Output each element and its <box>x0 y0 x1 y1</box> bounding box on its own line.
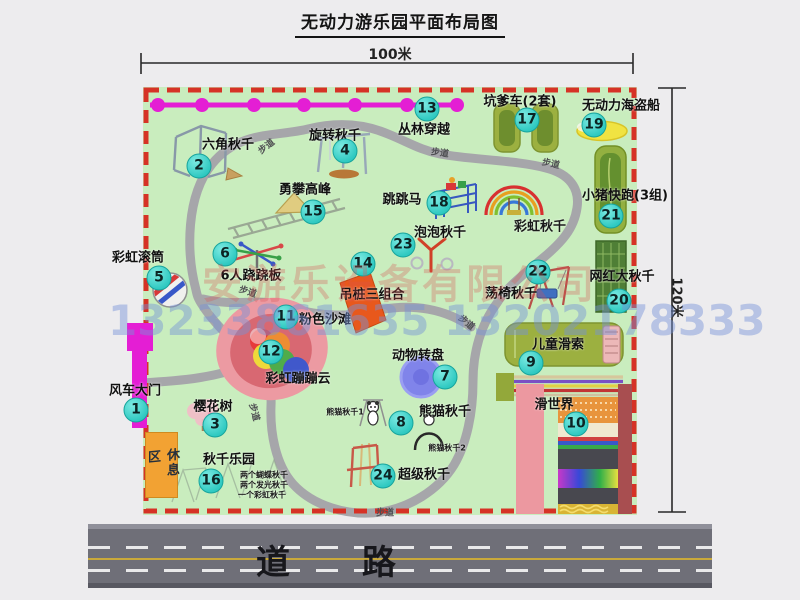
slide-world-icon <box>516 384 632 514</box>
marker-number-badge: 1 <box>124 398 149 423</box>
marker-label: 坑爹车(2套) <box>484 91 557 110</box>
marker-number-badge: 11 <box>274 305 299 330</box>
marker-label: 泡泡秋千 <box>414 222 466 241</box>
marker-label: 超级秋千 <box>398 464 450 483</box>
marker-number-badge: 16 <box>199 469 224 494</box>
marker-label: 勇攀高峰 <box>279 179 331 198</box>
marker-label: 儿童滑索 <box>532 334 584 353</box>
marker-label: 跳跳马 <box>382 189 421 208</box>
footpath-label: 步道 <box>376 506 394 519</box>
marker-number-badge: 5 <box>147 266 172 291</box>
marker-number-badge: 6 <box>213 242 238 267</box>
marker-number-badge: 19 <box>582 113 607 138</box>
road-label: 道 路 <box>256 535 426 584</box>
marker-label: 熊猫秋千 <box>419 401 471 420</box>
marker-label: 6人跷跷板 <box>220 265 281 284</box>
marker-number-badge: 7 <box>433 365 458 390</box>
marker-label: 秋千乐园 <box>203 449 255 468</box>
marker-number-badge: 14 <box>351 252 376 277</box>
marker-label: 滑世界 <box>534 394 573 413</box>
marker-number-badge: 8 <box>389 411 414 436</box>
road: 道 路 <box>88 524 712 588</box>
marker-label: 六角秋千 <box>202 134 254 153</box>
marker-label: 荡椅秋千 <box>485 283 537 302</box>
marker-label: 动物转盘 <box>392 345 444 364</box>
marker-number-badge: 23 <box>391 233 416 258</box>
marker-number-badge: 9 <box>519 351 544 376</box>
marker-label: 丛林穿越 <box>398 119 450 138</box>
map-extra-label: 彩虹秋千 <box>514 216 566 235</box>
marker-label: 小猪快跑(3组) <box>582 185 668 204</box>
marker-number-badge: 24 <box>371 464 396 489</box>
marker-label: 风车大门 <box>109 380 161 399</box>
marker-number-badge: 12 <box>259 340 284 365</box>
marker-number-badge: 21 <box>599 204 624 229</box>
marker-number-badge: 10 <box>564 412 589 437</box>
marker-label: 彩虹滚筒 <box>112 247 164 266</box>
map-extra-label: 熊猫秋千2 <box>428 443 466 454</box>
rest-area: 休息区 <box>145 432 178 498</box>
marker-number-badge: 17 <box>515 108 540 133</box>
park-plan-stage: 无动力游乐园平面布局图 100米 120米 <box>0 0 800 600</box>
marker-number-badge: 20 <box>607 289 632 314</box>
rest-area-label: 休息区 <box>143 447 181 483</box>
marker-number-badge: 3 <box>203 413 228 438</box>
map-extra-label: 一个彩虹秋千 <box>238 490 286 501</box>
marker-label: 网红大秋千 <box>589 266 654 285</box>
marker-label: 彩虹蹦蹦云 <box>265 368 330 387</box>
marker-number-badge: 22 <box>526 260 551 285</box>
marker-number-badge: 2 <box>187 154 212 179</box>
marker-label: 吊桩三组合 <box>339 284 404 303</box>
marker-number-badge: 18 <box>427 191 452 216</box>
marker-number-badge: 4 <box>333 139 358 164</box>
marker-number-badge: 15 <box>301 200 326 225</box>
marker-number-badge: 13 <box>415 97 440 122</box>
marker-label: 无动力海盗船 <box>582 95 660 114</box>
marker-label: 粉色沙滩 <box>299 309 351 328</box>
footpath-label: 步道 <box>430 144 450 159</box>
map-extra-label: 熊猫秋千1 <box>326 407 364 418</box>
